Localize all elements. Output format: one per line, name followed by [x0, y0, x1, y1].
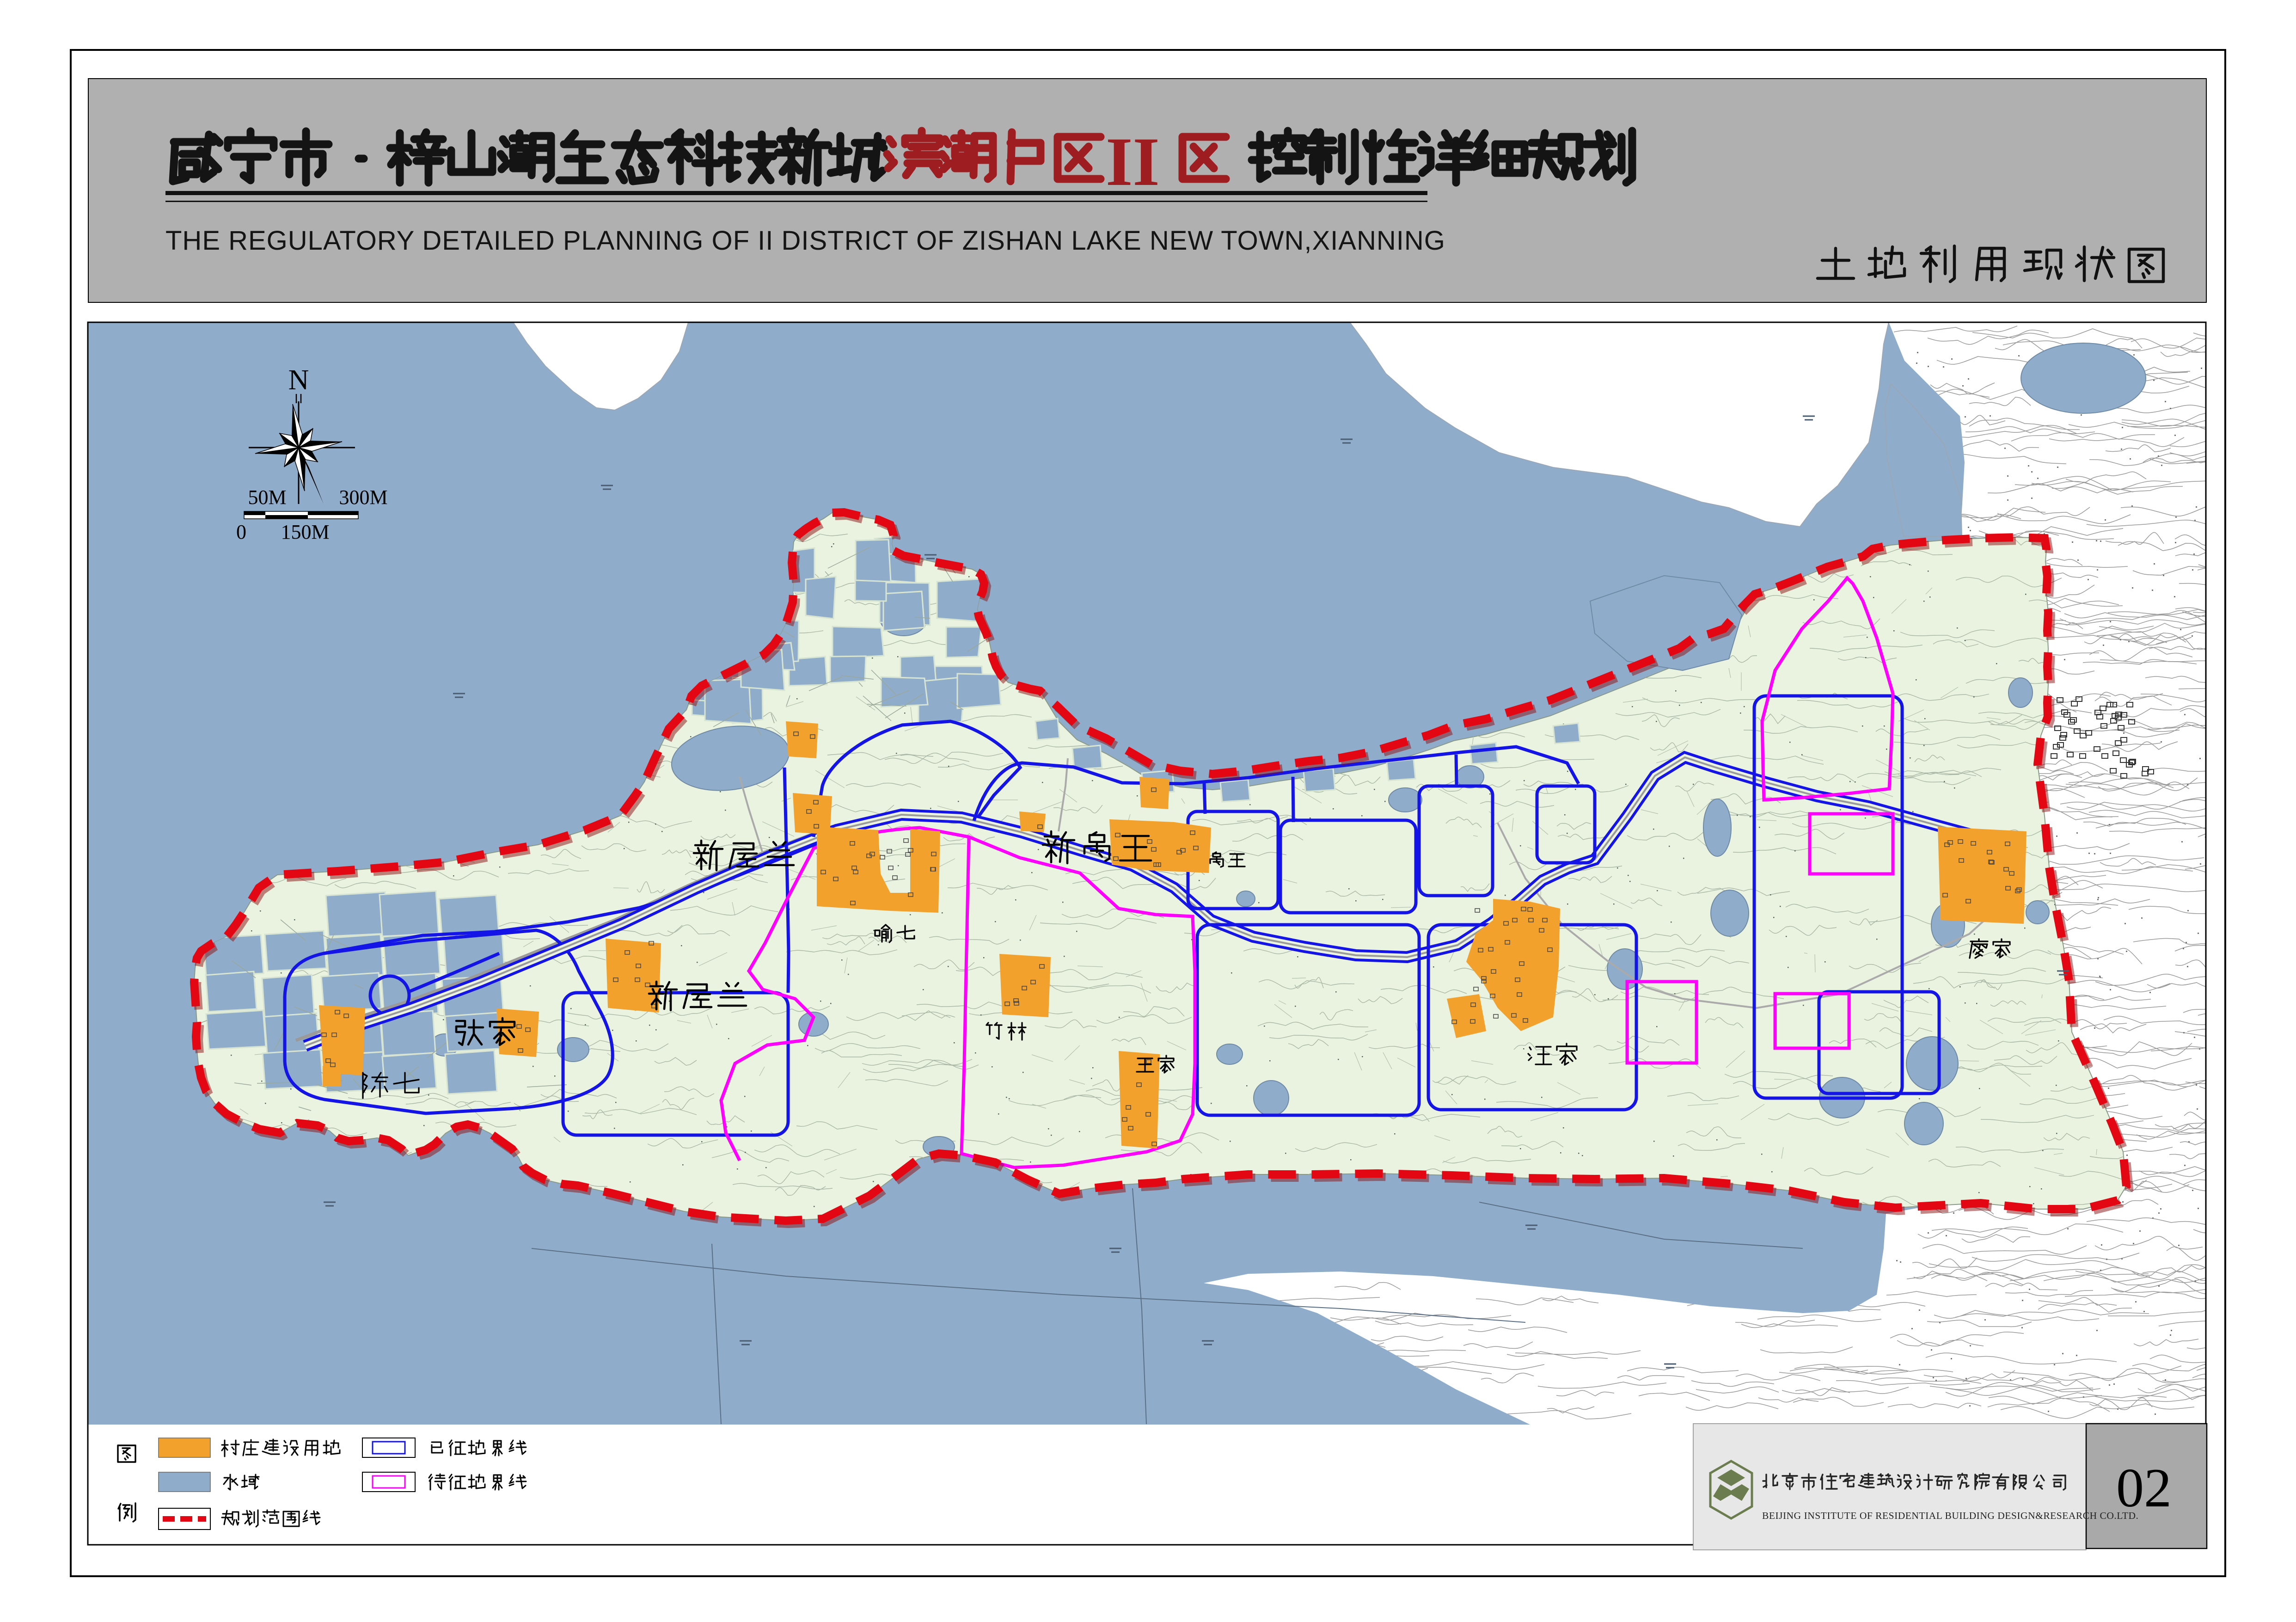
svg-text:0: 0 — [236, 521, 246, 543]
svg-text:BEIJING INSTITUTE OF RESIDENTI: BEIJING INSTITUTE OF RESIDENTIAL BUILDIN… — [1762, 1510, 2138, 1521]
svg-text:150M: 150M — [281, 521, 329, 543]
svg-text:50M: 50M — [248, 486, 286, 509]
svg-text:02: 02 — [2116, 1457, 2172, 1518]
svg-text:N: N — [288, 364, 309, 396]
svg-text:THE REGULATORY DETAILED PLANNI: THE REGULATORY DETAILED PLANNING OF II D… — [165, 226, 1445, 256]
svg-text:II: II — [1106, 123, 1160, 200]
svg-text:300M: 300M — [339, 486, 387, 509]
